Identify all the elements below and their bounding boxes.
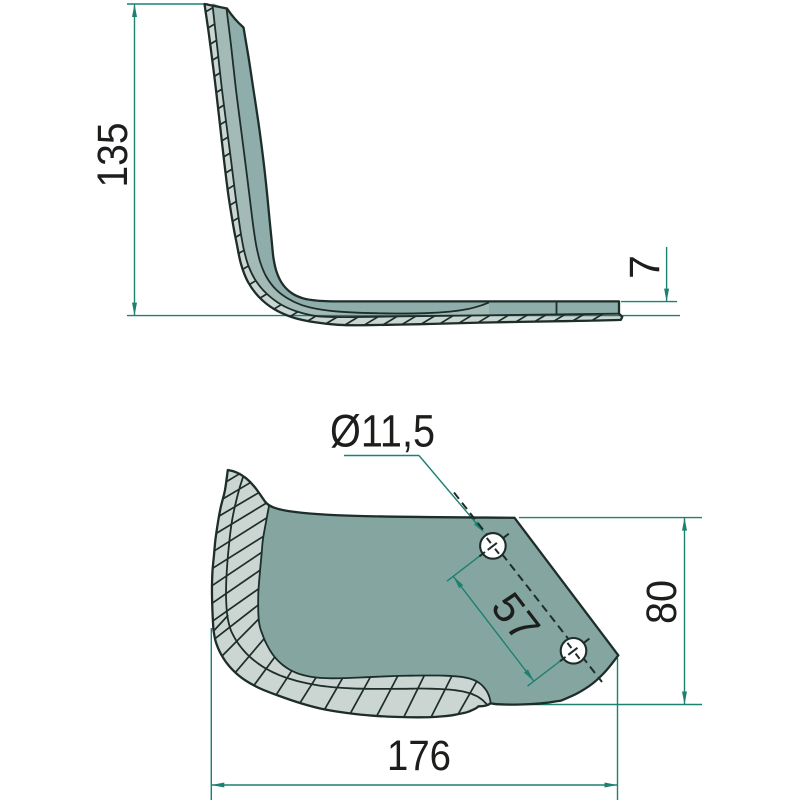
svg-text:Ø11,5: Ø11,5 (330, 406, 435, 457)
svg-text:176: 176 (387, 732, 451, 780)
svg-text:7: 7 (621, 255, 669, 279)
svg-text:135: 135 (89, 123, 137, 188)
svg-text:80: 80 (638, 580, 686, 624)
